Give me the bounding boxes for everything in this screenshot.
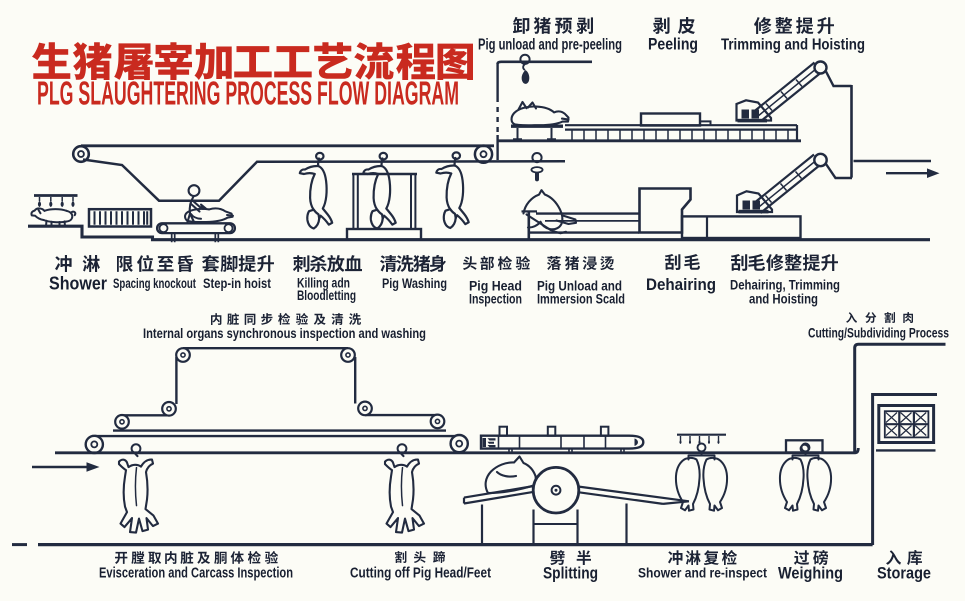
svg-text:Evisceration and Carcass Inspe: Evisceration and Carcass Inspection <box>99 566 293 582</box>
svg-text:Shower: Shower <box>49 274 107 294</box>
svg-text:Immersion Scald: Immersion Scald <box>537 292 625 307</box>
svg-text:Spacing knockout: Spacing knockout <box>113 276 196 291</box>
svg-text:and Hoisting: and Hoisting <box>749 292 818 307</box>
svg-text:Shower and re-inspect: Shower and re-inspect <box>638 565 767 581</box>
svg-text:PLG SLAUGHTERING PROCESS FLOW: PLG SLAUGHTERING PROCESS FLOW DIAGRAM <box>37 75 459 112</box>
svg-text:Bloodletting: Bloodletting <box>297 288 356 303</box>
svg-text:Step-in hoist: Step-in hoist <box>203 276 271 291</box>
svg-text:Weighing: Weighing <box>778 565 843 583</box>
svg-text:Cutting/Subdividing Process: Cutting/Subdividing Process <box>808 326 949 341</box>
svg-text:Cutting off Pig Head/Feet: Cutting off Pig Head/Feet <box>350 566 491 582</box>
svg-text:Pig unload and pre-peeling: Pig unload and pre-peeling <box>478 37 622 54</box>
svg-text:Pig Washing: Pig Washing <box>382 276 447 291</box>
svg-text:Dehairing: Dehairing <box>646 276 716 294</box>
svg-text:Storage: Storage <box>877 565 931 583</box>
svg-text:Splitting: Splitting <box>543 565 598 583</box>
svg-text:Inspection: Inspection <box>469 292 522 307</box>
svg-text:Dehairing, Trimming: Dehairing, Trimming <box>730 278 840 293</box>
svg-text:Trimming and Hoisting: Trimming and Hoisting <box>721 37 865 54</box>
svg-text:Internal organs synchronous in: Internal organs synchronous inspection a… <box>143 326 426 341</box>
svg-text:Peeling: Peeling <box>648 36 698 54</box>
